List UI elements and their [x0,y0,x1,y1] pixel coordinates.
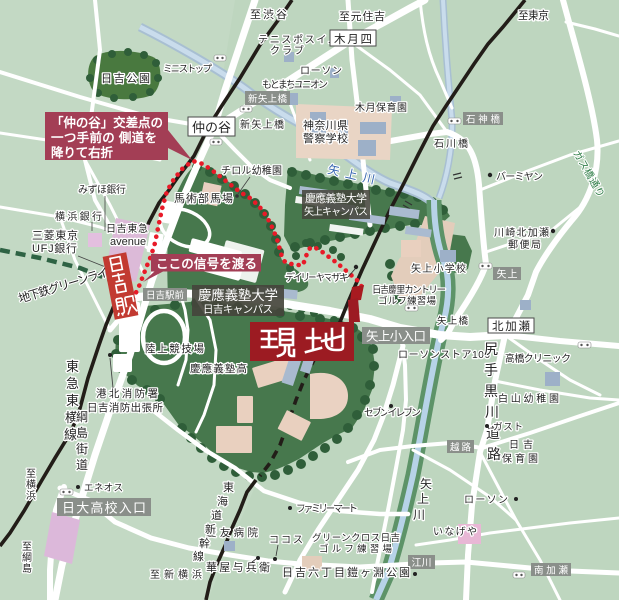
svg-text:木月四: 木月四 [334,33,372,46]
svg-text:浜: 浜 [26,490,36,502]
svg-text:石神橋: 石神橋 [466,114,500,126]
svg-text:ココス: ココス [269,535,303,546]
svg-text:いなげや: いなげや [433,526,477,538]
svg-text:北加瀬: 北加瀬 [492,319,531,333]
svg-text:至: 至 [26,468,36,480]
svg-text:エネオス: エネオス [84,483,123,494]
svg-text:ファミリーマート: ファミリーマート [296,504,358,515]
svg-text:一つ手前の 側道を: 一つ手前の 側道を [51,130,157,145]
svg-text:慶應義塾高: 慶應義塾高 [190,362,247,375]
svg-text:矢上小入口: 矢上小入口 [366,330,426,344]
svg-text:至渋谷: 至渋谷 [250,8,287,21]
svg-text:至元住吉: 至元住吉 [339,9,385,23]
svg-text:三菱東京: 三菱東京 [32,228,78,242]
svg-text:矢上: 矢上 [497,268,518,281]
svg-text:ミニストップ: ミニストップ [163,64,212,75]
svg-text:神奈川県: 神奈川県 [303,118,348,132]
svg-text:東: 東 [66,393,79,408]
svg-text:矢上キャンパス: 矢上キャンパス [304,205,368,218]
svg-text:線: 線 [193,549,204,563]
svg-text:綱: 綱 [22,551,32,564]
svg-text:東: 東 [223,481,234,494]
svg-text:新矢上橋: 新矢上橋 [240,118,284,131]
svg-text:道: 道 [211,508,222,522]
svg-text:上: 上 [417,492,429,506]
svg-text:「仲の谷」交差点の: 「仲の谷」交差点の [51,115,163,130]
svg-text:UFJ銀行: UFJ銀行 [32,241,77,255]
svg-text:日吉キャンパス: 日吉キャンパス [203,304,273,316]
svg-text:慶應義塾大学: 慶應義塾大学 [305,191,367,205]
svg-text:路: 路 [487,446,501,462]
svg-text:新: 新 [205,522,216,536]
svg-text:警察学校: 警察学校 [303,131,348,145]
svg-text:日吉慶里カントリー: 日吉慶里カントリー [372,284,446,296]
svg-text:高橋クリニック: 高橋クリニック [505,352,571,365]
svg-text:保育園: 保育園 [502,452,538,465]
svg-text:幹: 幹 [199,536,210,550]
svg-text:東: 東 [66,359,79,374]
svg-text:馬術部馬場: 馬術部馬場 [174,191,233,205]
svg-text:ここの信号を渡る: ここの信号を渡る [156,256,257,271]
svg-text:もとまちユニオン: もとまちユニオン [262,79,328,91]
svg-text:みずほ銀行: みずほ銀行 [78,183,126,196]
svg-text:テニスポスイム: テニスポスイム [258,34,338,46]
svg-text:島: 島 [22,562,32,575]
svg-text:港北消防署: 港北消防署 [96,387,158,400]
svg-text:白山幼稚園: 白山幼稚園 [498,392,559,405]
svg-text:セブンイレブン: セブンイレブン [364,406,421,419]
svg-text:川: 川 [485,404,499,420]
svg-text:ローソン: ローソン [300,66,342,77]
svg-text:急: 急 [66,376,79,391]
svg-text:ローソンストア100: ローソンストア100 [398,350,490,361]
svg-text:矢: 矢 [420,477,432,491]
svg-text:グリーンクロス日吉: グリーンクロス日吉 [312,532,400,544]
svg-text:島: 島 [76,425,88,440]
svg-text:川: 川 [413,508,425,522]
svg-text:陸上競技場: 陸上競技場 [145,342,205,355]
svg-text:手: 手 [484,362,498,378]
svg-text:海: 海 [217,494,228,508]
svg-text:至: 至 [22,541,32,553]
svg-text:尻: 尻 [484,341,498,357]
svg-text:道: 道 [76,458,88,472]
svg-text:江川: 江川 [412,557,432,569]
svg-text:至東京: 至東京 [518,8,549,22]
svg-text:石川橋: 石川橋 [434,137,468,150]
svg-text:街: 街 [76,442,88,456]
svg-text:バーミヤン: バーミヤン [496,171,543,183]
svg-text:日吉東急: 日吉東急 [106,222,148,235]
svg-text:木月保育園: 木月保育園 [355,101,407,114]
svg-text:郵便局: 郵便局 [508,238,541,251]
svg-text:越路: 越路 [450,442,471,454]
svg-text:ローソン: ローソン [464,495,508,506]
svg-text:川崎北加瀬: 川崎北加瀬 [494,226,549,239]
svg-text:ガスト: ガスト [493,422,523,433]
svg-text:日吉公園: 日吉公園 [101,72,150,85]
svg-text:慶應義塾大学: 慶應義塾大学 [198,287,278,303]
svg-text:矢上橋: 矢上橋 [437,315,468,327]
svg-text:仲の谷: 仲の谷 [192,120,231,135]
svg-text:南加瀬: 南加瀬 [534,565,568,577]
svg-text:日吉駅前: 日吉駅前 [146,290,184,302]
svg-text:新矢上橋: 新矢上橋 [248,93,287,105]
svg-text:日吉消防出張所: 日吉消防出張所 [87,401,164,414]
svg-text:矢上小学校: 矢上小学校 [411,262,466,275]
svg-text:日大高校入口: 日大高校入口 [62,501,146,516]
svg-text:横: 横 [26,478,36,491]
svg-text:クラブ: クラブ [270,44,304,57]
svg-text:黒: 黒 [484,383,498,399]
svg-text:avenue: avenue [110,236,146,248]
svg-text:チロル幼稚園: チロル幼稚園 [221,164,282,177]
svg-text:デイリーヤマザキ: デイリーヤマザキ [285,271,349,284]
svg-text:華屋与兵衛: 華屋与兵衛 [206,561,270,574]
svg-text:降りて右折: 降りて右折 [51,145,113,160]
